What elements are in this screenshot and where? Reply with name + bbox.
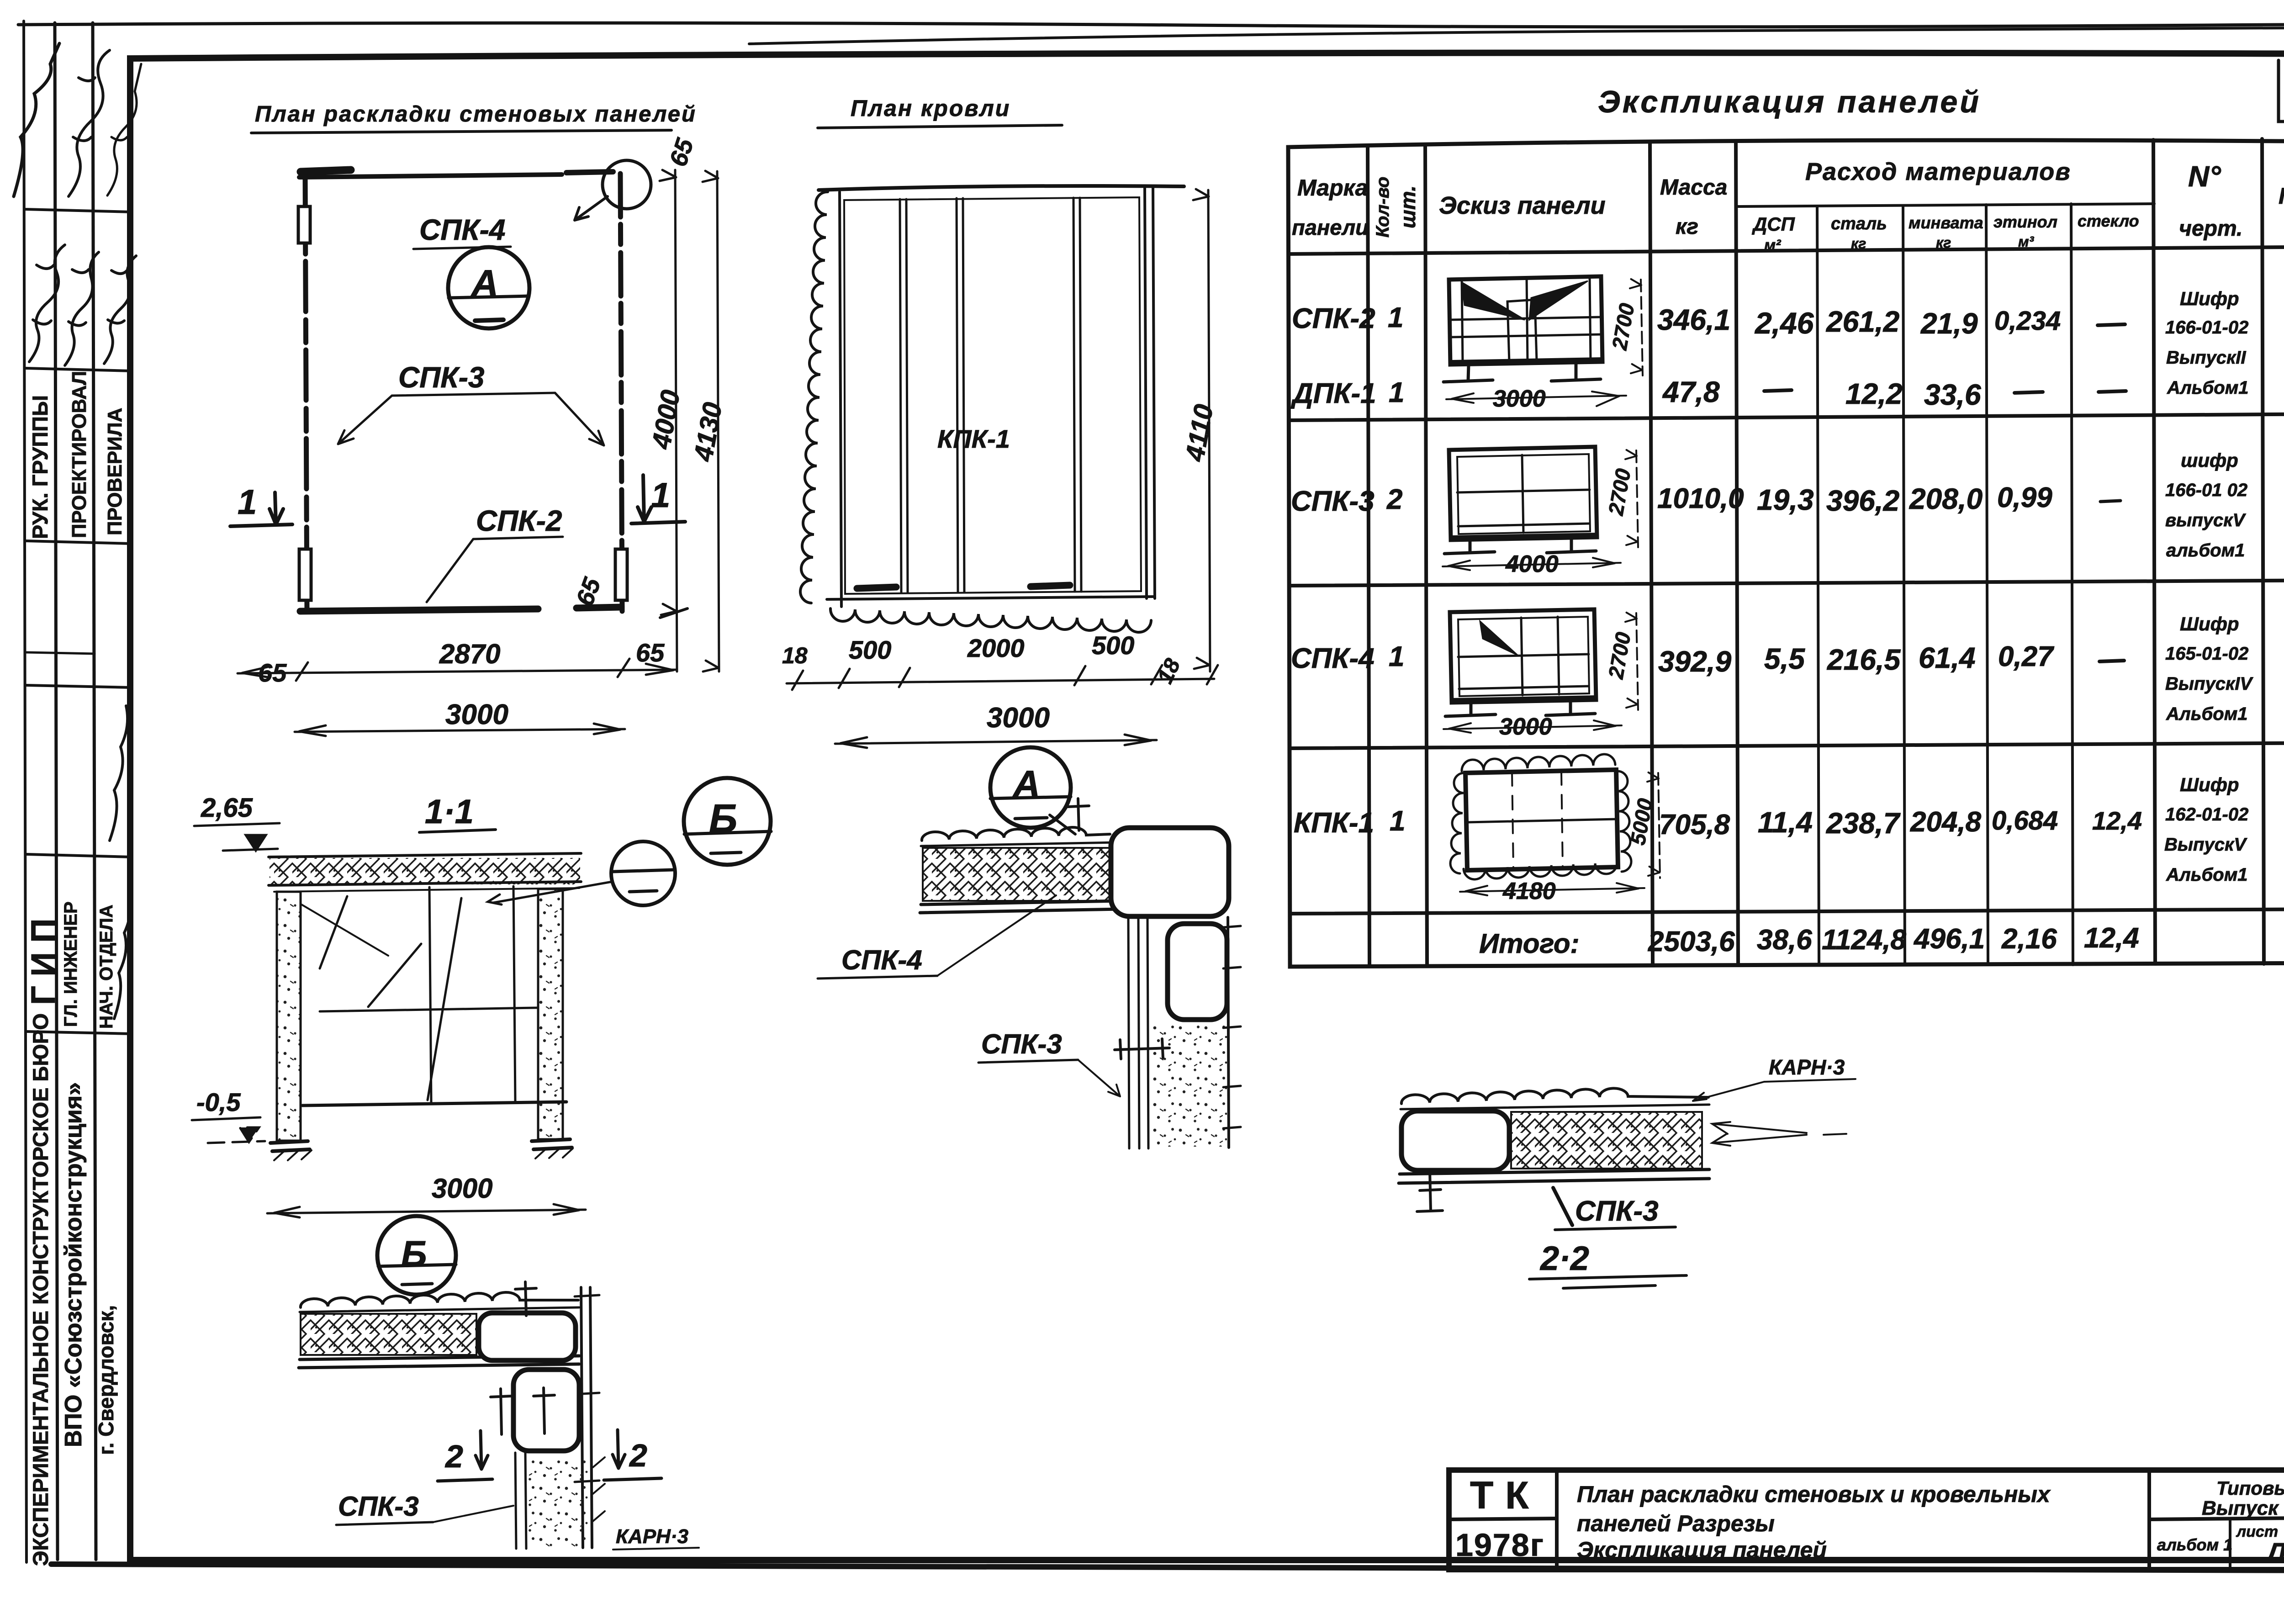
svg-text:План кровли: План кровли <box>851 95 1010 121</box>
svg-text:2,46: 2,46 <box>1754 306 1814 340</box>
svg-text:кг: кг <box>1851 235 1866 252</box>
svg-text:ТК: ТК <box>1470 1474 1541 1517</box>
svg-text:Кол-во: Кол-во <box>1373 177 1393 238</box>
svg-text:4000: 4000 <box>646 388 686 451</box>
svg-text:ВыпускIV: ВыпускIV <box>2165 674 2253 694</box>
svg-text:Альбом1: Альбом1 <box>2166 704 2248 724</box>
svg-text:2870: 2870 <box>439 639 500 669</box>
svg-text:12,4: 12,4 <box>2092 806 2142 835</box>
svg-text:г. Свердловск,: г. Свердловск, <box>94 1305 118 1455</box>
svg-text:1: 1 <box>651 476 670 515</box>
svg-text:705,8: 705,8 <box>1659 809 1730 841</box>
svg-text:3000: 3000 <box>445 699 508 730</box>
svg-text:2700: 2700 <box>1607 302 1639 352</box>
svg-text:альбом 1: альбом 1 <box>2157 1535 2232 1554</box>
svg-text:Шифр: Шифр <box>2180 774 2239 795</box>
svg-text:План раскладки стеновых панеле: План раскладки стеновых панелей <box>255 102 697 127</box>
svg-text:1: 1 <box>1390 805 1405 837</box>
svg-text:38,6: 38,6 <box>1757 924 1812 956</box>
svg-text:м²: м² <box>1764 237 1782 254</box>
svg-text:ВыпускV: ВыпускV <box>2164 835 2247 855</box>
svg-text:КПК-1: КПК-1 <box>1294 807 1374 839</box>
svg-text:шифр: шифр <box>2181 450 2238 471</box>
svg-text:кг: кг <box>1676 215 1698 239</box>
svg-text:216,5: 216,5 <box>1827 643 1901 676</box>
svg-text:2,65: 2,65 <box>201 793 253 823</box>
svg-text:392,9: 392,9 <box>1658 645 1732 678</box>
svg-text:2: 2 <box>629 1438 647 1473</box>
svg-text:3000: 3000 <box>432 1173 492 1204</box>
svg-text:Б: Б <box>401 1233 427 1274</box>
svg-text:Выпуск 1.: Выпуск 1. <box>2202 1497 2284 1519</box>
svg-text:План раскладки стеновых и кров: План раскладки стеновых и кровельных <box>1577 1481 2051 1507</box>
svg-text:1978г: 1978г <box>1455 1527 1544 1563</box>
svg-text:500: 500 <box>1092 631 1134 660</box>
svg-text:РУК. ГРУППЫ: РУК. ГРУППЫ <box>28 395 52 539</box>
svg-text:1: 1 <box>1388 302 1403 333</box>
svg-text:1: 1 <box>238 483 257 522</box>
svg-text:500: 500 <box>849 635 891 664</box>
svg-text:396,2: 396,2 <box>1826 484 1899 517</box>
svg-text:166-01-02: 166-01-02 <box>2165 317 2248 338</box>
svg-text:2: 2 <box>1386 484 1402 515</box>
svg-text:ДСП: ДСП <box>1752 213 1795 235</box>
svg-text:СПК-2: СПК-2 <box>1292 303 1375 334</box>
svg-text:4130: 4130 <box>688 400 728 464</box>
svg-text:5,5: 5,5 <box>1764 642 1805 675</box>
svg-text:238,7: 238,7 <box>1826 807 1901 840</box>
svg-text:Расход материалов: Расход материалов <box>1805 158 2071 185</box>
svg-text:19,3: 19,3 <box>1757 483 1814 516</box>
svg-text:162-01-02: 162-01-02 <box>2165 804 2248 825</box>
svg-text:ВыпускII: ВыпускII <box>2166 348 2246 368</box>
svg-text:47,8: 47,8 <box>1662 376 1720 408</box>
svg-text:1124,8: 1124,8 <box>1822 924 1907 956</box>
svg-text:СПК-2: СПК-2 <box>476 504 562 537</box>
svg-text:Типовые: Типовые <box>2216 1477 2284 1499</box>
svg-text:Экспликация панелей: Экспликация панелей <box>1577 1537 1827 1563</box>
svg-text:1: 1 <box>1389 377 1404 408</box>
svg-text:0,27: 0,27 <box>1998 641 2054 672</box>
svg-text:1010,0: 1010,0 <box>1657 483 1744 514</box>
svg-text:СПК-3: СПК-3 <box>398 361 485 394</box>
svg-text:альбом1: альбом1 <box>2166 540 2245 561</box>
svg-text:2,16: 2,16 <box>2001 923 2057 955</box>
svg-text:65: 65 <box>664 135 699 170</box>
svg-text:м³: м³ <box>2018 233 2035 250</box>
svg-text:208,0: 208,0 <box>1909 482 1983 515</box>
svg-text:65: 65 <box>636 638 665 667</box>
svg-text:0,99: 0,99 <box>1997 482 2052 513</box>
svg-text:панели: панели <box>1292 215 1369 239</box>
svg-text:1·1: 1·1 <box>425 793 474 831</box>
svg-text:2700: 2700 <box>1603 467 1635 518</box>
svg-text:шт.: шт. <box>1396 185 1420 228</box>
svg-text:496,1: 496,1 <box>1913 923 1985 955</box>
svg-text:Прим: Прим <box>2279 183 2284 209</box>
svg-text:4110: 4110 <box>1180 402 1219 464</box>
svg-text:СПК-4: СПК-4 <box>1291 643 1375 674</box>
svg-text:61,4: 61,4 <box>1919 641 1976 674</box>
svg-text:СПК-4: СПК-4 <box>419 213 506 246</box>
svg-text:стекло: стекло <box>2078 212 2139 230</box>
svg-text:ЭКСПЕРИМЕНТАЛЬНОЕ КОНСТРУКТОР: ЭКСПЕРИМЕНТАЛЬНОЕ КОНСТРУКТОРСКОЕ БЮРО <box>28 1013 53 1566</box>
svg-text:Шифр: Шифр <box>2180 288 2239 309</box>
svg-text:Экспликация панелей: Экспликация панелей <box>1598 85 1981 119</box>
svg-text:11,4: 11,4 <box>1758 806 1813 839</box>
svg-text:ПРОЕКТИРОВАЛ: ПРОЕКТИРОВАЛ <box>68 371 90 538</box>
svg-text:выпускV: выпускV <box>2165 510 2247 530</box>
svg-text:346,1: 346,1 <box>1657 303 1730 336</box>
svg-text:ДПК-1: ДПК-1 <box>1290 378 1376 409</box>
svg-text:ПРОВЕРИЛА: ПРОВЕРИЛА <box>104 408 126 535</box>
svg-text:2503,6: 2503,6 <box>1648 926 1735 957</box>
svg-text:2000: 2000 <box>967 634 1025 662</box>
svg-text:СПК-4: СПК-4 <box>841 945 922 975</box>
svg-text:0,234: 0,234 <box>1994 306 2061 336</box>
svg-text:Альбом1: Альбом1 <box>2167 378 2249 398</box>
svg-text:Марка: Марка <box>1297 175 1368 201</box>
svg-text:18: 18 <box>782 643 808 668</box>
svg-text:КАРН·3: КАРН·3 <box>1769 1055 1845 1079</box>
svg-text:3000: 3000 <box>987 702 1050 734</box>
svg-text:Шифр: Шифр <box>2180 613 2239 635</box>
svg-text:166-01 02: 166-01 02 <box>2165 480 2247 500</box>
svg-text:261,2: 261,2 <box>1826 305 1899 338</box>
svg-text:12,2: 12,2 <box>1845 377 1903 410</box>
svg-text:панелей Разрезы: панелей Разрезы <box>1577 1511 1775 1536</box>
svg-text:21,9: 21,9 <box>1920 307 1978 340</box>
svg-text:КПК-1: КПК-1 <box>937 424 1010 453</box>
svg-text:НАЧ. ОТДЕЛА: НАЧ. ОТДЕЛА <box>96 905 116 1029</box>
svg-text:Альбом1: Альбом1 <box>2166 865 2248 885</box>
svg-text:СПК-3: СПК-3 <box>1291 486 1375 517</box>
svg-text:Масса: Масса <box>1660 175 1727 200</box>
svg-text:1: 1 <box>1389 641 1404 672</box>
svg-text:Итого:: Итого: <box>1479 928 1580 959</box>
svg-text:минвата: минвата <box>1909 213 1983 232</box>
svg-text:-0,5: -0,5 <box>196 1088 241 1116</box>
svg-text:33,6: 33,6 <box>1924 378 1981 411</box>
svg-text:ГЛ. ИНЖЕНЕР: ГЛ. ИНЖЕНЕР <box>61 901 81 1027</box>
svg-text:165-01-02: 165-01-02 <box>2165 644 2248 664</box>
svg-text:КАРН·3: КАРН·3 <box>616 1525 688 1548</box>
svg-text:204,8: 204,8 <box>1910 806 1982 838</box>
svg-text:черт.: черт. <box>2179 217 2242 241</box>
svg-text:ЛС-5: ЛС-5 <box>2266 1538 2284 1567</box>
svg-text:0,684: 0,684 <box>1992 806 2058 836</box>
svg-text:Эскиз панели: Эскиз панели <box>1439 192 1606 219</box>
svg-text:СПК-3: СПК-3 <box>1575 1196 1659 1227</box>
svg-text:кг: кг <box>1936 234 1951 251</box>
svg-text:СПК-3: СПК-3 <box>338 1491 419 1522</box>
svg-text:этинол: этинол <box>1993 212 2057 231</box>
svg-text:СПК-3: СПК-3 <box>981 1029 1062 1059</box>
svg-text:ВПО «Союзстройконструкция»: ВПО «Союзстройконструкция» <box>60 1082 87 1447</box>
svg-text:2·2: 2·2 <box>1539 1239 1589 1277</box>
svg-text:N°: N° <box>2188 160 2221 193</box>
svg-text:2700: 2700 <box>1603 630 1635 681</box>
svg-text:12,4: 12,4 <box>2084 922 2139 954</box>
svg-text:2: 2 <box>444 1439 463 1474</box>
svg-text:сталь: сталь <box>1831 214 1887 233</box>
svg-text:Г И П: Г И П <box>24 919 62 1005</box>
